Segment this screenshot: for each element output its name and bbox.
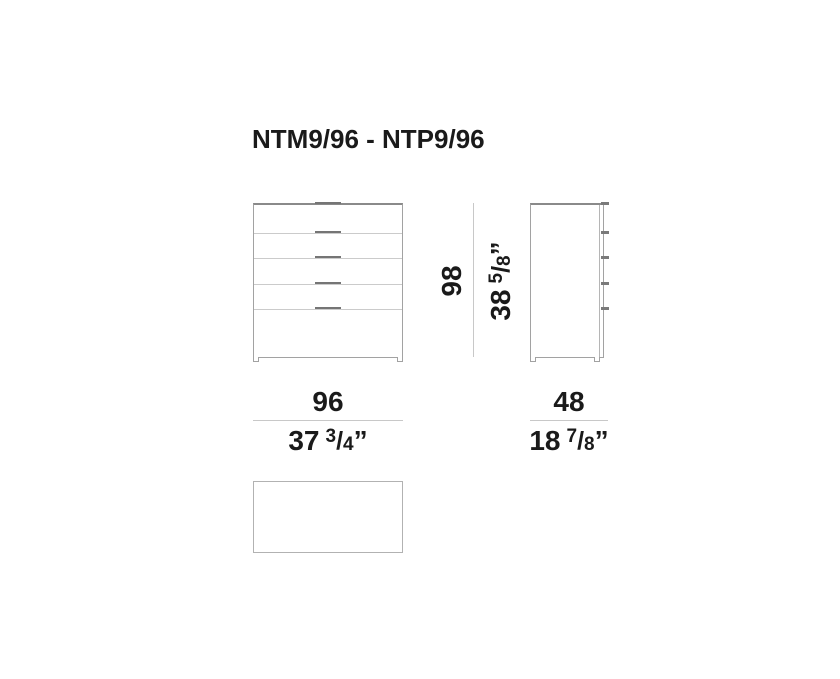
height-dimension-inches: 385/8” <box>480 201 514 361</box>
inch-mark: ” <box>485 241 516 255</box>
drawer-divider <box>254 258 402 259</box>
height-dimension-cm: 98 <box>437 221 467 341</box>
side-handle-tick <box>601 282 609 285</box>
drawer-divider <box>254 309 402 310</box>
width-dimension-line <box>253 420 403 421</box>
height-inches-denominator: 8 <box>494 255 515 266</box>
front-view <box>253 203 403 358</box>
width-inches-denominator: 4 <box>343 434 354 455</box>
plan-view <box>253 481 403 553</box>
drawer-handle <box>315 282 341 284</box>
height-cm-value: 98 <box>436 265 467 296</box>
inch-mark: ” <box>354 425 368 456</box>
side-handle-tick <box>601 256 609 259</box>
fraction-slash: / <box>577 427 584 455</box>
side-view-foot-right <box>594 357 600 362</box>
inch-mark: ” <box>595 425 609 456</box>
page-title: NTM9/96 - NTP9/96 <box>252 124 485 155</box>
height-inches-whole: 38 <box>485 289 516 320</box>
depth-inches-denominator: 8 <box>584 434 595 455</box>
front-view-foot-right <box>397 357 403 362</box>
width-inches-whole: 37 <box>288 425 319 456</box>
fraction-slash: / <box>487 266 515 273</box>
height-dimension-line <box>473 203 474 357</box>
fraction-slash: / <box>336 427 343 455</box>
drawer-handle <box>315 202 341 204</box>
side-handle-tick <box>601 307 609 310</box>
drawer-divider <box>254 233 402 234</box>
height-inches-numerator: 5 <box>486 273 507 284</box>
depth-inches-numerator: 7 <box>567 426 578 447</box>
technical-drawing-page: NTM9/96 - NTP9/96 98 385/8” 96 <box>0 0 840 679</box>
drawer-divider <box>254 284 402 285</box>
drawer-handle <box>315 231 341 233</box>
front-view-foot-left <box>253 357 259 362</box>
side-view <box>530 203 604 358</box>
depth-inches-value: 187/8” <box>521 422 617 460</box>
width-dimension: 96 373/4” <box>253 389 403 460</box>
drawer-handle <box>315 256 341 258</box>
width-inches-value: 373/4” <box>253 422 403 460</box>
depth-cm-value: 48 <box>521 389 617 414</box>
drawer-front-line <box>599 205 600 357</box>
side-handle-tick <box>601 231 609 234</box>
depth-dimension: 48 187/8” <box>521 389 617 460</box>
width-cm-value: 96 <box>253 389 403 414</box>
depth-dimension-line <box>530 420 608 421</box>
side-view-foot-left <box>530 357 536 362</box>
width-inches-numerator: 3 <box>326 426 337 447</box>
depth-inches-whole: 18 <box>529 425 560 456</box>
side-handle-tick <box>601 202 609 205</box>
drawer-handle <box>315 307 341 309</box>
